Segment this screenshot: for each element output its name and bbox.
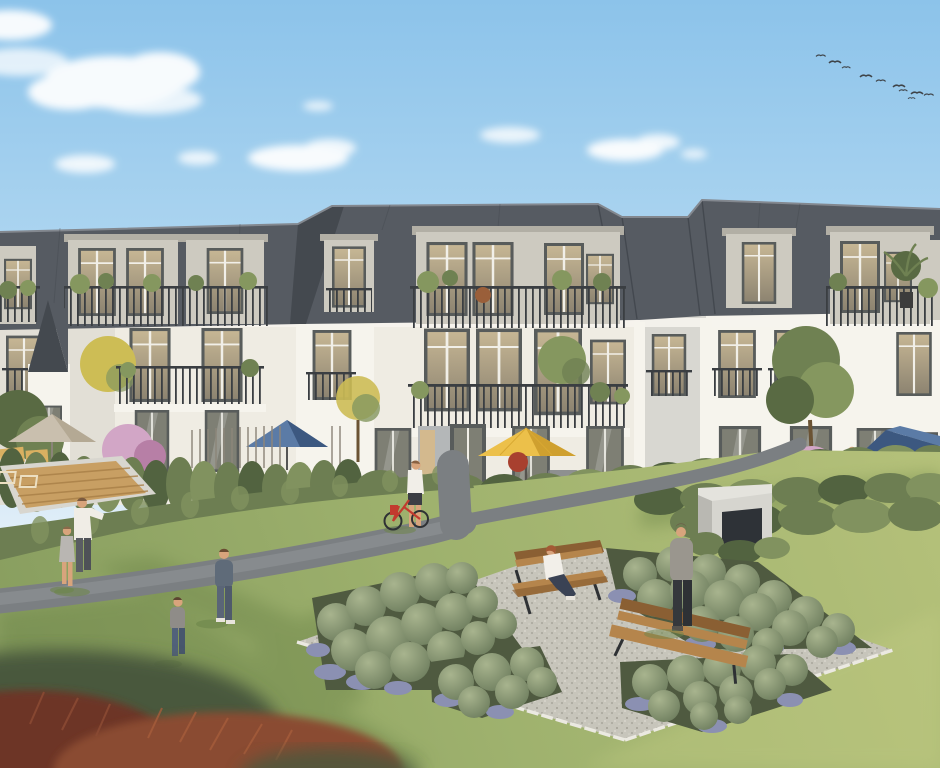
balcony <box>410 286 626 328</box>
window <box>896 332 932 396</box>
balcony <box>646 370 692 396</box>
path-entrance <box>453 466 456 524</box>
red-plant <box>508 452 528 472</box>
window <box>205 410 239 472</box>
balcony <box>182 286 268 326</box>
balcony <box>326 288 372 312</box>
balcony <box>712 368 762 396</box>
scene-canvas: Residential complex exterior rendering A… <box>0 0 940 768</box>
architectural-rendering: Residential complex exterior rendering A… <box>0 0 940 768</box>
dormer <box>722 228 796 308</box>
balcony <box>826 286 934 326</box>
